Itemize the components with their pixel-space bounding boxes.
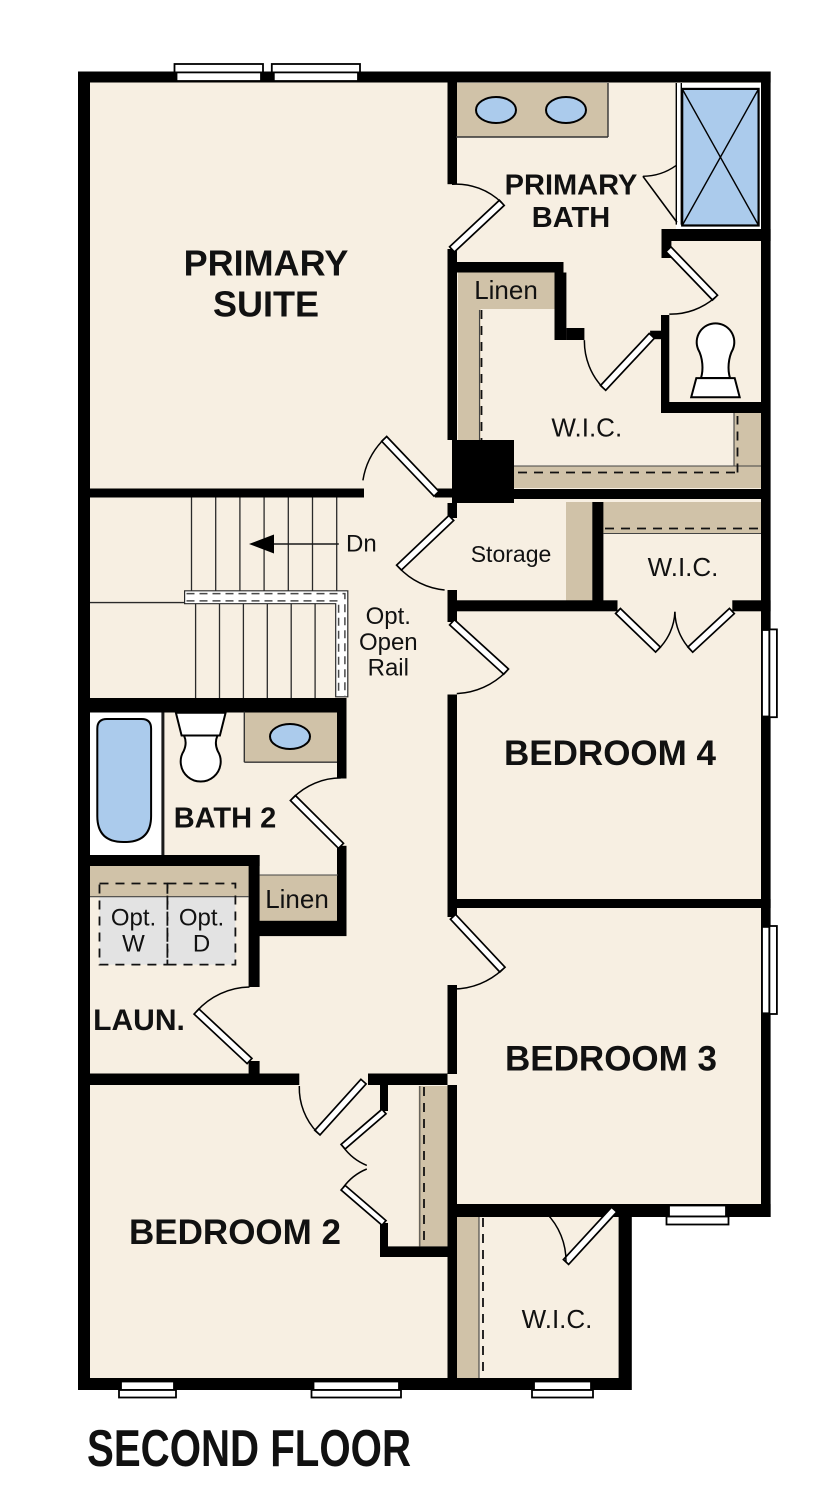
svg-text:BEDROOM 4: BEDROOM 4	[504, 734, 717, 773]
svg-text:PRIMARY: PRIMARY	[184, 243, 349, 284]
svg-text:BATH: BATH	[532, 202, 610, 234]
svg-text:W.I.C.: W.I.C.	[648, 552, 719, 582]
svg-text:Rail: Rail	[368, 655, 409, 682]
svg-text:SUITE: SUITE	[213, 284, 319, 325]
svg-text:BEDROOM 2: BEDROOM 2	[129, 1213, 341, 1252]
svg-text:Linen: Linen	[265, 884, 329, 914]
svg-text:Linen: Linen	[474, 275, 538, 305]
svg-text:W.I.C.: W.I.C.	[551, 412, 622, 442]
svg-text:BEDROOM 3: BEDROOM 3	[505, 1040, 717, 1079]
svg-text:W: W	[122, 931, 145, 958]
svg-text:Opt.: Opt.	[111, 905, 156, 932]
svg-text:Dn: Dn	[346, 531, 377, 558]
svg-text:BATH 2: BATH 2	[174, 803, 277, 835]
svg-text:SECOND FLOOR: SECOND FLOOR	[87, 1420, 411, 1478]
svg-text:PRIMARY: PRIMARY	[505, 169, 638, 201]
svg-text:LAUN.: LAUN.	[93, 1004, 185, 1037]
svg-text:Opt.: Opt.	[179, 905, 224, 932]
svg-text:Opt.: Opt.	[366, 603, 411, 630]
svg-text:W.I.C.: W.I.C.	[522, 1304, 593, 1334]
svg-text:Storage: Storage	[471, 541, 552, 567]
svg-text:D: D	[193, 931, 210, 958]
svg-text:Open: Open	[359, 629, 418, 656]
